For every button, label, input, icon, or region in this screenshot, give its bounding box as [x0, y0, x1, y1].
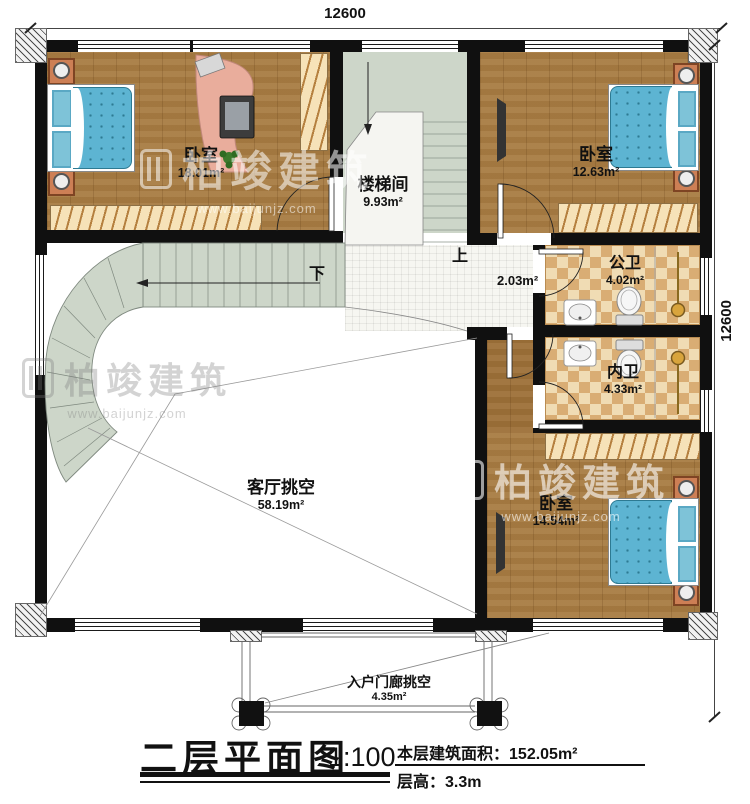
room-area: 58.19m²	[247, 498, 315, 513]
lamp-icon	[678, 67, 695, 84]
room-name: 公卫	[606, 254, 644, 273]
room-label-private-bathroom: 内卫 4.33m²	[604, 363, 642, 397]
floor-height-info: 层高：3.3m	[397, 768, 481, 792]
pier-hatch	[475, 630, 507, 642]
stair-up-label: 上	[452, 242, 468, 266]
dimension-right: 12600	[718, 300, 735, 342]
wall	[533, 245, 545, 250]
corridor-area-label: 2.03m²	[497, 273, 538, 288]
room-name: 入户门廊挑空	[347, 674, 431, 691]
wardrobe	[545, 433, 700, 460]
window	[78, 40, 190, 52]
room-name: 卧室	[533, 494, 580, 514]
floor-area-label: 本层建筑面积：	[397, 746, 509, 763]
lamp-icon	[53, 173, 70, 190]
room-name: 内卫	[604, 363, 642, 382]
room-area: 14.54m²	[533, 514, 580, 529]
bed-sheet	[666, 502, 678, 582]
pier-hatch	[688, 28, 718, 63]
window	[533, 618, 663, 632]
pillow	[51, 130, 73, 169]
room-name: 楼梯间	[358, 175, 409, 195]
dimension-line-top	[30, 28, 722, 29]
bed-mattress	[610, 86, 672, 168]
plan-scale: 1:100	[328, 742, 396, 773]
nightstand	[48, 58, 75, 85]
floor-area-value: 152.05m²	[509, 746, 578, 763]
title-underline	[140, 781, 390, 783]
porch-column	[477, 701, 502, 726]
room-area: 4.33m²	[604, 382, 642, 396]
window	[700, 390, 712, 432]
wall	[467, 52, 480, 245]
wall	[533, 325, 712, 337]
lamp-icon	[678, 584, 695, 601]
pillow	[677, 545, 697, 583]
wall	[330, 52, 343, 177]
wardrobe	[558, 203, 698, 233]
room-area: 12.63m²	[573, 165, 620, 180]
room-label-bedroom-top-left: 卧室 18.01m²	[178, 146, 225, 181]
floor-area-info: 本层建筑面积：152.05m²	[397, 740, 578, 764]
window	[700, 258, 712, 315]
wall	[475, 340, 487, 618]
lamp-icon	[678, 480, 695, 497]
pillow	[677, 505, 697, 543]
pier-hatch	[15, 28, 47, 63]
room-name: 卧室	[178, 146, 225, 166]
wardrobe	[300, 53, 328, 151]
dimension-top: 12600	[324, 5, 366, 22]
pier-hatch	[688, 612, 718, 640]
room-area: 9.93m²	[358, 195, 409, 210]
window	[193, 40, 310, 52]
floor-stairwell	[343, 52, 467, 245]
window	[362, 40, 458, 52]
floor-hallway	[487, 340, 533, 433]
floor-corridor	[345, 245, 533, 331]
bed-sheet	[666, 87, 678, 167]
room-area: 18.01m²	[178, 166, 225, 181]
window	[75, 618, 200, 632]
room-label-public-bathroom: 公卫 4.02m²	[606, 254, 644, 288]
wardrobe	[50, 205, 262, 233]
porch-column	[239, 701, 264, 726]
nightstand	[48, 169, 75, 196]
wall	[467, 327, 507, 340]
room-label-bedroom-bottom: 卧室 14.54m²	[533, 494, 580, 529]
room-label-living-void: 客厅挑空 58.19m²	[247, 478, 315, 513]
room-name: 客厅挑空	[247, 478, 315, 498]
floor-plan: 卧室 18.01m² 楼梯间 9.93m² 卧室 12.63m² 公卫 4.02…	[0, 0, 750, 804]
pillow	[677, 90, 697, 128]
room-area: 4.35m²	[347, 691, 431, 704]
window	[303, 618, 433, 632]
floor-height-value: 3.3m	[445, 774, 481, 791]
room-label-stairwell: 楼梯间 9.93m²	[358, 175, 409, 210]
bed-sheet	[71, 88, 84, 168]
room-label-entry-porch: 入户门廊挑空 4.35m²	[347, 674, 431, 704]
pillow	[51, 89, 73, 128]
floor-height-label: 层高：	[397, 774, 445, 791]
wall	[533, 420, 712, 433]
window	[525, 40, 663, 52]
pier-hatch	[15, 603, 47, 637]
pier-hatch	[230, 630, 262, 642]
info-divider	[395, 764, 645, 766]
stair-down-label: 下	[309, 260, 325, 284]
wall	[533, 293, 545, 385]
wall	[35, 230, 343, 243]
room-area: 4.02m²	[606, 273, 644, 287]
wall	[480, 233, 497, 245]
room-label-bedroom-top-right: 卧室 12.63m²	[573, 145, 620, 180]
room-name: 卧室	[573, 145, 620, 165]
pillow	[677, 130, 697, 168]
bed-mattress	[610, 500, 672, 584]
lamp-icon	[53, 62, 70, 79]
window	[35, 255, 47, 375]
lamp-icon	[678, 170, 695, 187]
wall	[551, 233, 712, 245]
